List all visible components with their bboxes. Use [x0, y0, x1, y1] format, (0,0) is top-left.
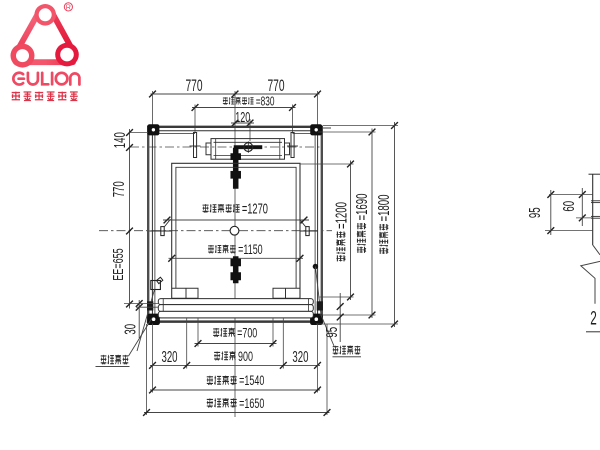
svg-text:=1650: =1650: [239, 396, 265, 411]
svg-text:320: 320: [161, 347, 177, 365]
svg-text:320: 320: [292, 347, 308, 365]
svg-text:=830: =830: [256, 95, 275, 109]
svg-text:=1800: =1800: [375, 195, 393, 222]
svg-text:900: 900: [238, 349, 253, 364]
svg-text:770: 770: [267, 77, 284, 95]
svg-text:60: 60: [560, 201, 578, 212]
svg-text:140: 140: [111, 132, 129, 148]
svg-text:=1270: =1270: [242, 200, 268, 217]
svg-text:95: 95: [322, 327, 340, 338]
svg-text:95: 95: [525, 207, 543, 218]
svg-text:EE=655: EE=655: [110, 248, 127, 280]
svg-text:770: 770: [110, 181, 128, 197]
svg-text:R: R: [66, 3, 71, 12]
svg-text:2: 2: [590, 309, 597, 329]
svg-text:=1200: =1200: [332, 202, 350, 229]
svg-text:=1540: =1540: [239, 373, 265, 388]
svg-text:30: 30: [121, 324, 139, 335]
svg-text:770: 770: [185, 77, 202, 95]
svg-text:=1150: =1150: [238, 242, 263, 257]
svg-text:=1690: =1690: [352, 194, 370, 221]
svg-text:=700: =700: [237, 325, 258, 340]
svg-text:120: 120: [235, 109, 250, 126]
